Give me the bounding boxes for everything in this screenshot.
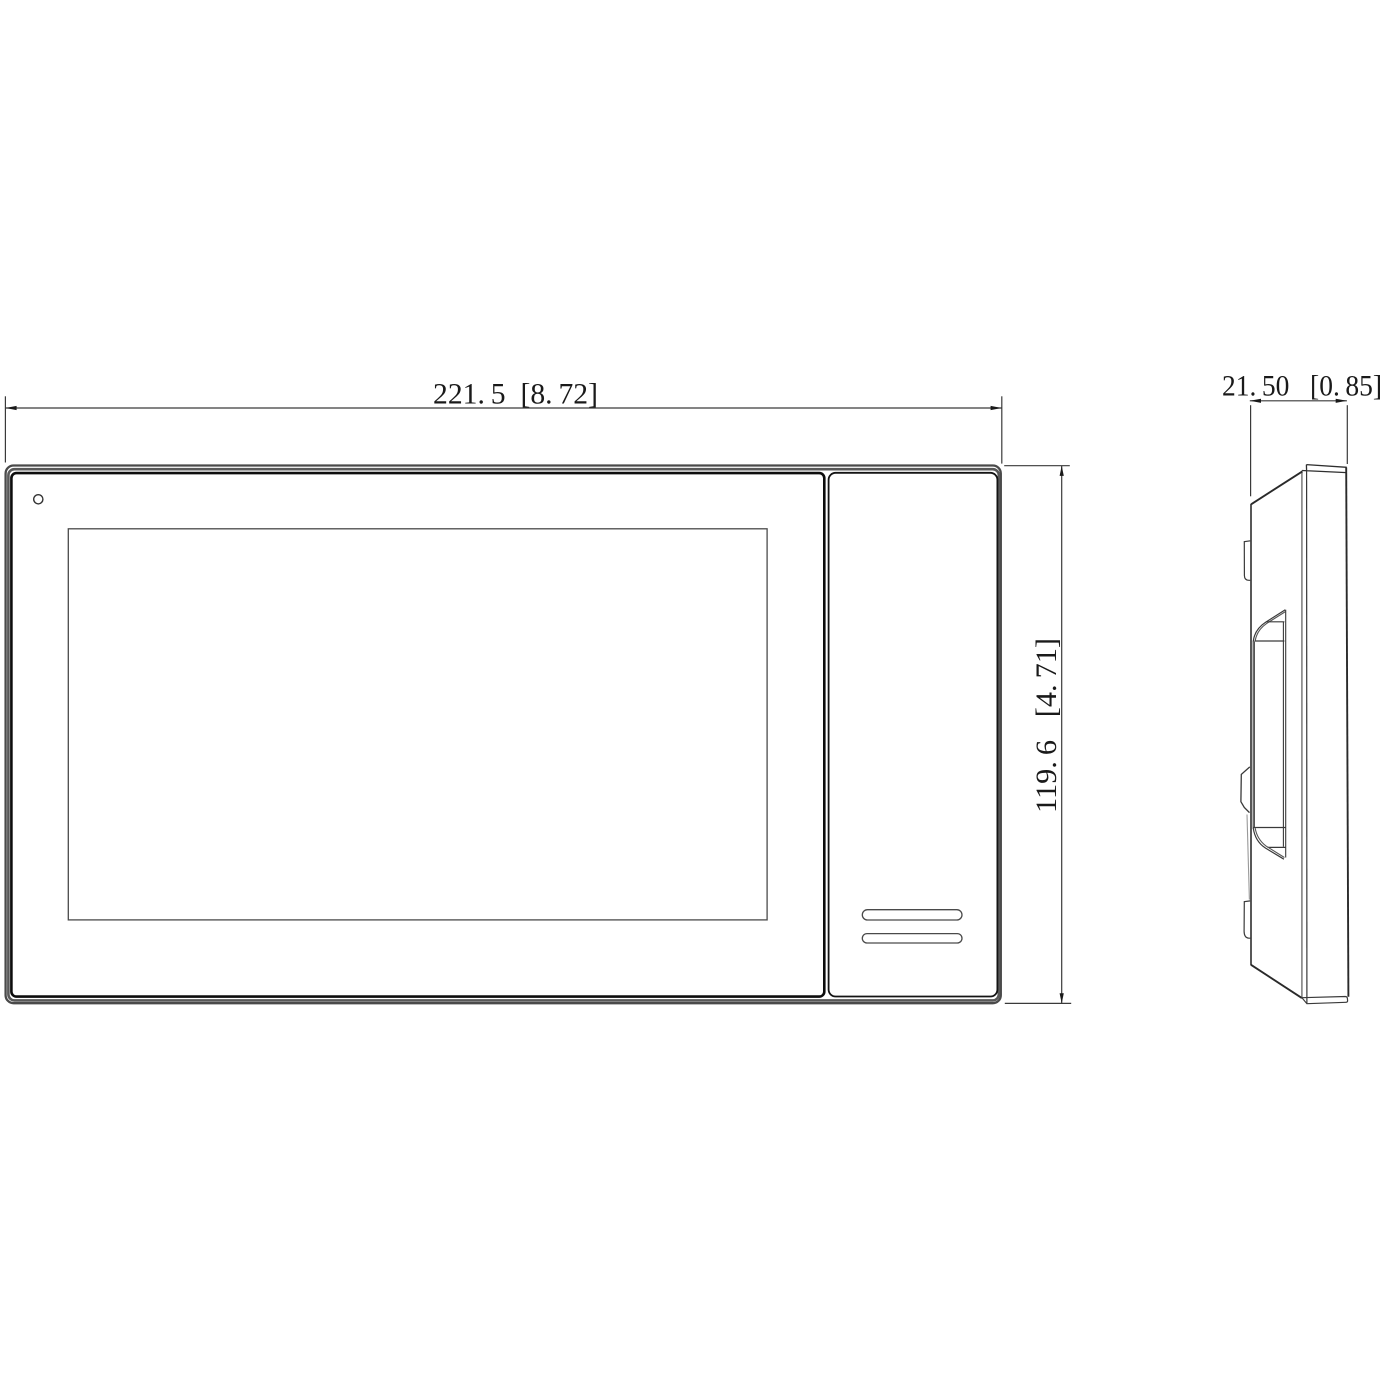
svg-text:221. 5 [8. 72]: 221. 5 [8. 72] [433, 378, 598, 411]
svg-text:21. 50 [0. 85]: 21. 50 [0. 85] [1222, 369, 1380, 402]
svg-text:119. 6 [4. 71]: 119. 6 [4. 71] [1030, 638, 1063, 813]
